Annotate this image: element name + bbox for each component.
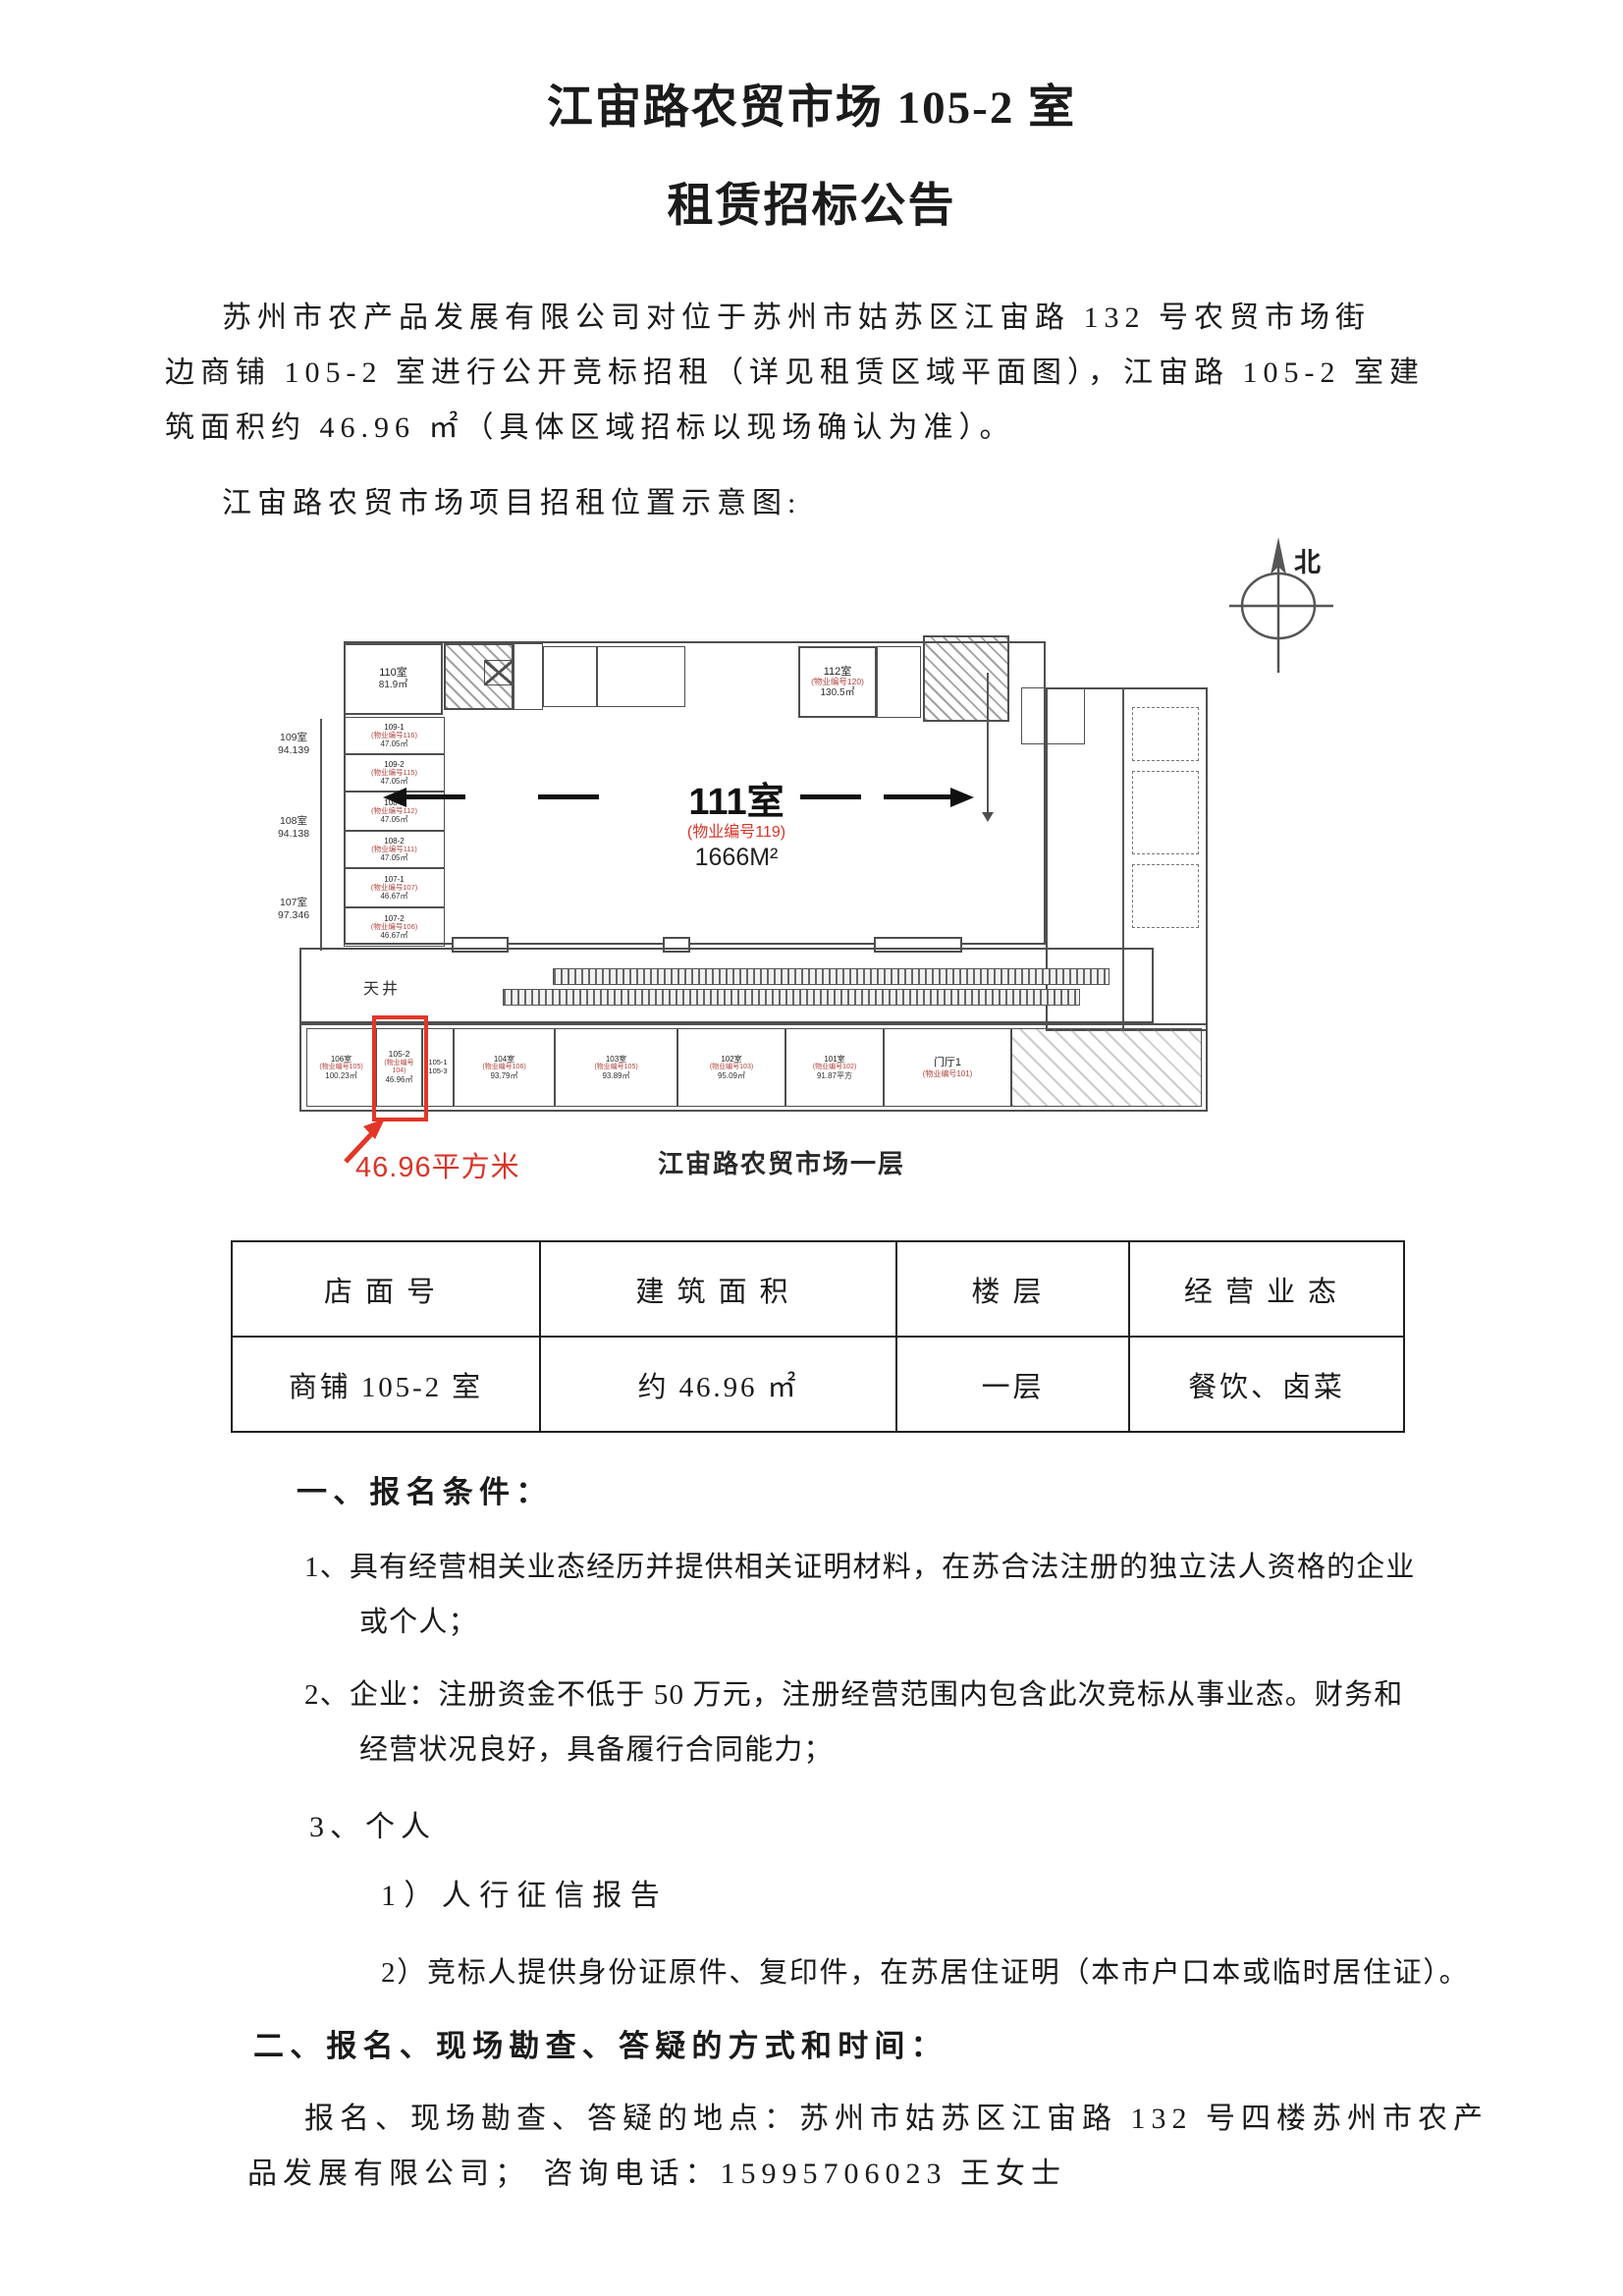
floor-plan: 北 110室 81.9㎡ 112室 (物业编号120) 130.5㎡ 109-1… [245, 525, 1384, 1203]
shop-info-table: 店面号 建筑面积 楼层 经营业态 商铺 105-2 室 约 46.96 ㎡ 一层… [231, 1240, 1405, 1433]
room-area: 47.05㎡ [380, 815, 407, 824]
shop-104: 104室 (物业编号106) 93.79㎡ [454, 1028, 555, 1107]
dim-room: 108室 [267, 815, 320, 828]
table-cell-floor: 一层 [897, 1338, 1130, 1431]
condition-1-line2: 或个人； [359, 1599, 478, 1640]
shop-label: 101室 [824, 1055, 844, 1064]
shop-101: 101室 (物业编号102) 91.87平方 [785, 1028, 884, 1107]
compass-label: 北 [1294, 541, 1321, 579]
hall-prop: (物业编号119) [668, 818, 805, 842]
hall-area: 1666M² [668, 844, 805, 872]
table-header-floor: 楼层 [897, 1242, 1130, 1338]
condition-3-sub2: 2）竞标人提供身份证原件、复印件，在苏居住证明（本市户口本或临时居住证）。 [381, 1949, 1469, 1991]
room-110-area: 81.9㎡ [379, 680, 407, 691]
section-2-heading: 二、报名、现场勘查、答疑的方式和时间： [253, 2021, 947, 2065]
shop-lobby-1: 门厅1 (物业编号101) [884, 1028, 1011, 1107]
condition-2-line2: 经营状况良好，具备履行合同能力； [359, 1726, 834, 1768]
shop-label: 105-3 [428, 1067, 447, 1076]
room-112: 112室 (物业编号120) 130.5㎡ [798, 646, 877, 718]
room-prop: (物业编号106) [371, 923, 418, 932]
shop-label: 门厅1 [934, 1057, 961, 1069]
room-107-1: 107-1 (物业编号107) 46.67㎡ [344, 868, 445, 907]
shop-area: 100.23㎡ [325, 1071, 356, 1080]
shop-prop: (物业编号105) [319, 1064, 362, 1071]
room-110: 110室 81.9㎡ [344, 643, 443, 715]
room-area: 46.67㎡ [380, 931, 407, 940]
doc-title-line2: 租赁招标公告 [0, 167, 1623, 235]
plan-caption: 江宙路农贸市场一层 [658, 1144, 905, 1180]
washroom-fixtures [1132, 707, 1199, 761]
shop-area: 93.89㎡ [602, 1071, 629, 1080]
shop-prop: (物业编号102) [813, 1064, 856, 1071]
dim-107: 107室 97.346 [267, 897, 320, 922]
hall-arrow-left-icon [383, 788, 406, 807]
table-cell-area: 约 46.96 ㎡ [541, 1338, 897, 1431]
intro-line-1: 苏州市农产品发展有限公司对位于苏州市姑苏区江宙路 132 号农贸市场街 [222, 293, 1371, 336]
room-area: 47.05㎡ [380, 777, 407, 786]
shop-103: 103室 (物业编号105) 93.89㎡ [555, 1028, 677, 1107]
compass-north-icon [1217, 525, 1345, 683]
shop-106: 106室 (物业编号105) 100.23㎡ [306, 1028, 376, 1107]
room-109-1: 109-1 (物业编号116) 47.05㎡ [344, 717, 445, 754]
condition-2-line1: 2、企业：注册资金不低于 50 万元，注册经营范围内包含此次竞标从事业态。财务和 [304, 1671, 1403, 1713]
room-prop: (物业编号115) [371, 769, 417, 778]
utility-room-c [597, 646, 685, 707]
corridor-arrow-icon [982, 812, 994, 822]
condition-1-line1: 1、具有经营相关业态经历并提供相关证明材料，在苏合法注册的独立法人资格的企业 [304, 1544, 1416, 1585]
room-prop: (物业编号116) [371, 732, 417, 740]
right-wing-annex [1021, 687, 1085, 744]
washroom-fixtures [1132, 771, 1199, 854]
hall-arrow-dash [884, 794, 950, 799]
shop-label: 102室 [721, 1055, 741, 1064]
hall-name: 111室 [677, 771, 795, 825]
hall-arrow-dash [538, 794, 599, 799]
utility-room-b [543, 646, 597, 707]
table-header-business: 经营业态 [1130, 1242, 1403, 1338]
washroom-fixtures [1132, 864, 1199, 928]
contact-line1: 报名、现场勘查、答疑的地点：苏州市姑苏区江宙路 132 号四楼苏州市农产 [304, 2094, 1488, 2137]
announcement-document: 江宙路农贸市场 105-2 室 租赁招标公告 苏州市农产品发展有限公司对位于苏州… [0, 0, 1623, 2296]
dim-108: 108室 94.138 [267, 815, 320, 841]
plan-heading: 江宙路农贸市场项目招租位置示意图: [222, 478, 801, 521]
corridor-line [987, 673, 989, 812]
section-1-heading: 一、报名条件： [297, 1467, 552, 1511]
room-prop: (物业编号112) [371, 807, 417, 816]
table-header-shop-no: 店面号 [233, 1242, 541, 1338]
dim-value: 94.139 [267, 744, 320, 757]
shop-prop: (物业编号101) [923, 1069, 973, 1078]
stairwell-hatch-right [923, 635, 1009, 722]
elevator-shaft [484, 660, 514, 685]
stair-block-bottom-right [1011, 1028, 1202, 1107]
highlight-box-105-2 [372, 1015, 428, 1121]
table-cell-business: 餐饮、卤菜 [1130, 1338, 1403, 1431]
intro-line-3: 筑面积约 46.96 ㎡（具体区域招标以现场确认为准）。 [165, 403, 1015, 446]
room-112-prop: (物业编号120) [811, 678, 864, 687]
hall-arrow-right-icon [950, 788, 974, 807]
shop-prop: (物业编号105) [594, 1064, 637, 1071]
shop-label: 103室 [606, 1055, 626, 1064]
side-room [877, 646, 921, 718]
doc-title-line1: 江宙路农贸市场 105-2 室 [0, 69, 1623, 137]
dim-value: 94.138 [267, 828, 320, 841]
stall-row [503, 989, 1080, 1006]
contact-line2: 品发展有限公司； 咨询电话：15995706023 王女士 [247, 2149, 1066, 2192]
shop-label: 106室 [331, 1055, 352, 1064]
utility-room-a [514, 643, 543, 710]
hall-arrow-dash [800, 794, 861, 799]
room-112-area: 130.5㎡ [820, 687, 854, 699]
dimension-line [320, 719, 322, 951]
shop-102: 102室 (物业编号103) 95.09㎡ [677, 1028, 785, 1107]
stall-row [553, 968, 1109, 985]
room-area: 47.05㎡ [380, 853, 407, 862]
room-108-2: 108-2 (物业编号111) 47.05㎡ [344, 831, 445, 868]
highlight-arrow-icon [336, 1111, 399, 1170]
intro-line-2: 边商铺 105-2 室进行公开竞标招租（详见租赁区域平面图），江宙路 105-2… [165, 348, 1425, 391]
shop-prop: (物业编号106) [482, 1064, 525, 1071]
dim-value: 97.346 [267, 909, 320, 922]
shop-label: 104室 [494, 1055, 514, 1064]
room-area: 46.67㎡ [380, 892, 407, 901]
room-prop: (物业编号107) [371, 884, 418, 893]
room-110-name: 110室 [379, 667, 407, 680]
dim-room: 107室 [267, 897, 320, 909]
shop-prop: (物业编号103) [710, 1064, 753, 1071]
dim-109: 109室 94.139 [267, 732, 320, 757]
courtyard-strip [299, 948, 1154, 1023]
table-cell-shop-no: 商铺 105-2 室 [233, 1338, 541, 1431]
shop-area: 91.87平方 [817, 1071, 852, 1080]
table-header-area: 建筑面积 [541, 1242, 897, 1338]
room-109-2: 109-2 (物业编号115) 47.05㎡ [344, 754, 445, 792]
room-prop: (物业编号111) [371, 846, 416, 854]
dim-room: 109室 [267, 732, 320, 744]
room-area: 47.05㎡ [380, 739, 407, 748]
condition-3: 3、个人 [309, 1802, 436, 1845]
room-107-2: 107-2 (物业编号106) 46.67㎡ [344, 907, 445, 947]
shop-area: 93.79㎡ [490, 1071, 517, 1080]
condition-3-sub1: 1）人行征信报告 [381, 1871, 668, 1914]
shop-area: 95.09㎡ [718, 1071, 745, 1080]
courtyard-label: 天井 [363, 975, 401, 999]
hall-arrow-dash [406, 794, 465, 799]
